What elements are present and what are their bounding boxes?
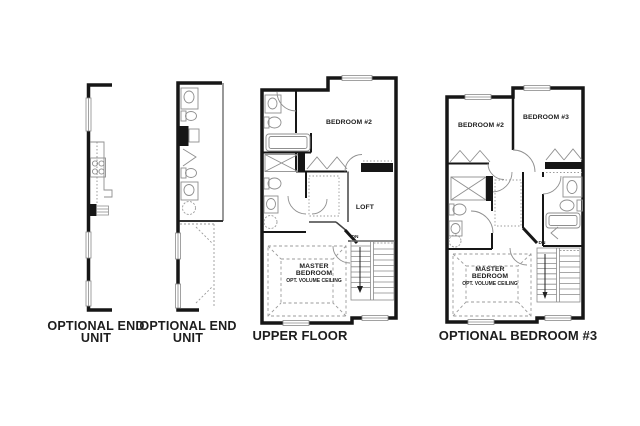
wall-chase xyxy=(180,126,189,146)
stair-dn-label-opt: DN xyxy=(535,241,549,246)
end-unit-right-plan xyxy=(176,83,224,310)
optional-bedroom3-title: OPTIONAL BEDROOM #3 xyxy=(433,329,603,343)
end-unit-left-plan xyxy=(86,85,112,310)
wall-stub xyxy=(545,162,583,169)
shower-icon xyxy=(183,202,196,215)
sink-icon xyxy=(181,182,198,200)
volume-ceiling-note: OPT. VOLUME CEILING xyxy=(450,282,530,287)
shower-niche xyxy=(189,129,199,142)
toilet-icon xyxy=(181,111,197,121)
room-label-loft: LOFT xyxy=(335,204,395,211)
cooktop-icon xyxy=(91,158,106,177)
upper-floor-plan xyxy=(262,76,396,326)
wall-stub xyxy=(298,154,305,173)
room-label-bedroom2: BEDROOM #2 xyxy=(309,119,389,126)
sink-icon xyxy=(181,88,198,109)
hearth-hatch xyxy=(97,206,109,215)
wall-stub xyxy=(361,163,393,172)
master-bedroom-text: MASTER BEDROOM xyxy=(288,263,340,278)
floor-plan-drawing xyxy=(0,0,640,426)
floor-plan-sheet: OPTIONAL END UNIT OPTIONAL END UNIT UPPE… xyxy=(0,0,640,426)
optional-area-outline xyxy=(180,224,214,307)
toilet-icon xyxy=(181,168,197,178)
door-swing xyxy=(183,149,196,166)
room-label-master-bedroom-opt: MASTER BEDROOM OPT. VOLUME CEILING xyxy=(450,266,530,287)
upper-floor-title: UPPER FLOOR xyxy=(238,329,362,343)
stair-dn-label: DN xyxy=(348,235,362,240)
end-unit-right-title: OPTIONAL END UNIT xyxy=(136,321,240,344)
room-label-bedroom2-opt: BEDROOM #2 xyxy=(441,122,521,129)
exterior-wall xyxy=(89,85,113,310)
fireplace-stub xyxy=(89,204,97,216)
exterior-wall xyxy=(262,78,396,323)
room-label-bedroom3: BEDROOM #3 xyxy=(506,114,586,121)
kitchen-counter xyxy=(91,142,113,203)
volume-ceiling-note: OPT. VOLUME CEILING xyxy=(274,279,354,284)
room-label-master-bedroom: MASTER BEDROOM OPT. VOLUME CEILING xyxy=(274,263,354,284)
master-bedroom-text: MASTER BEDROOM xyxy=(464,266,516,281)
exterior-wall xyxy=(178,83,222,310)
end-unit-left-title: OPTIONAL END UNIT xyxy=(44,321,148,344)
